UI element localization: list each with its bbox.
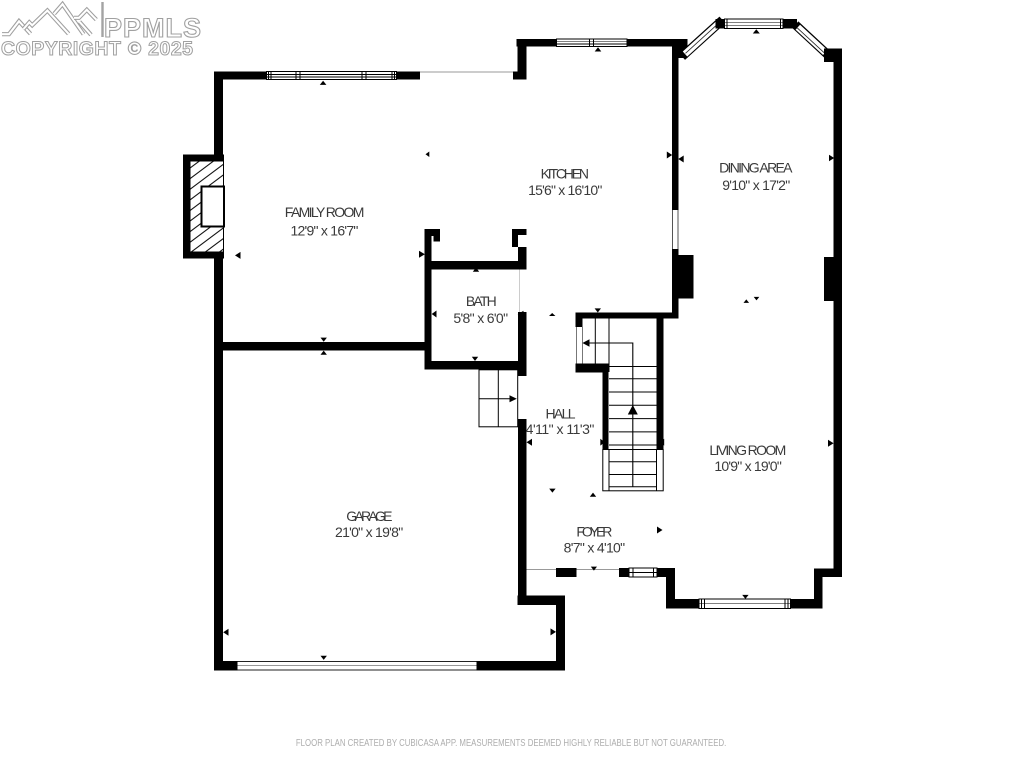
svg-text:9'10" x 17'2": 9'10" x 17'2" xyxy=(722,177,790,193)
svg-text:KITCHEN: KITCHEN xyxy=(541,165,589,181)
svg-text:FLOOR PLAN CREATED BY CUBICASA: FLOOR PLAN CREATED BY CUBICASA APP. MEAS… xyxy=(296,738,726,749)
svg-text:21'0" x 19'8": 21'0" x 19'8" xyxy=(335,524,403,540)
svg-text:FAMILY ROOM: FAMILY ROOM xyxy=(285,204,365,220)
svg-text:BATH: BATH xyxy=(466,293,497,309)
svg-text:8'7" x 4'10": 8'7" x 4'10" xyxy=(564,540,626,556)
svg-text:15'6" x 16'10": 15'6" x 16'10" xyxy=(528,182,602,198)
svg-text:5'8" x 6'0": 5'8" x 6'0" xyxy=(453,310,508,326)
svg-text:FOYER: FOYER xyxy=(576,523,612,539)
svg-text:HALL: HALL xyxy=(545,405,575,421)
svg-text:4'11" x 11'3": 4'11" x 11'3" xyxy=(526,421,595,437)
svg-text:COPYRIGHT © 2025: COPYRIGHT © 2025 xyxy=(1,38,194,60)
svg-text:LIVING ROOM: LIVING ROOM xyxy=(709,442,786,458)
svg-text:DINING AREA: DINING AREA xyxy=(719,160,793,176)
svg-text:10'9" x 19'0": 10'9" x 19'0" xyxy=(714,458,781,474)
svg-text:GARAGE: GARAGE xyxy=(346,508,392,524)
svg-text:12'9" x 16'7": 12'9" x 16'7" xyxy=(290,222,358,238)
